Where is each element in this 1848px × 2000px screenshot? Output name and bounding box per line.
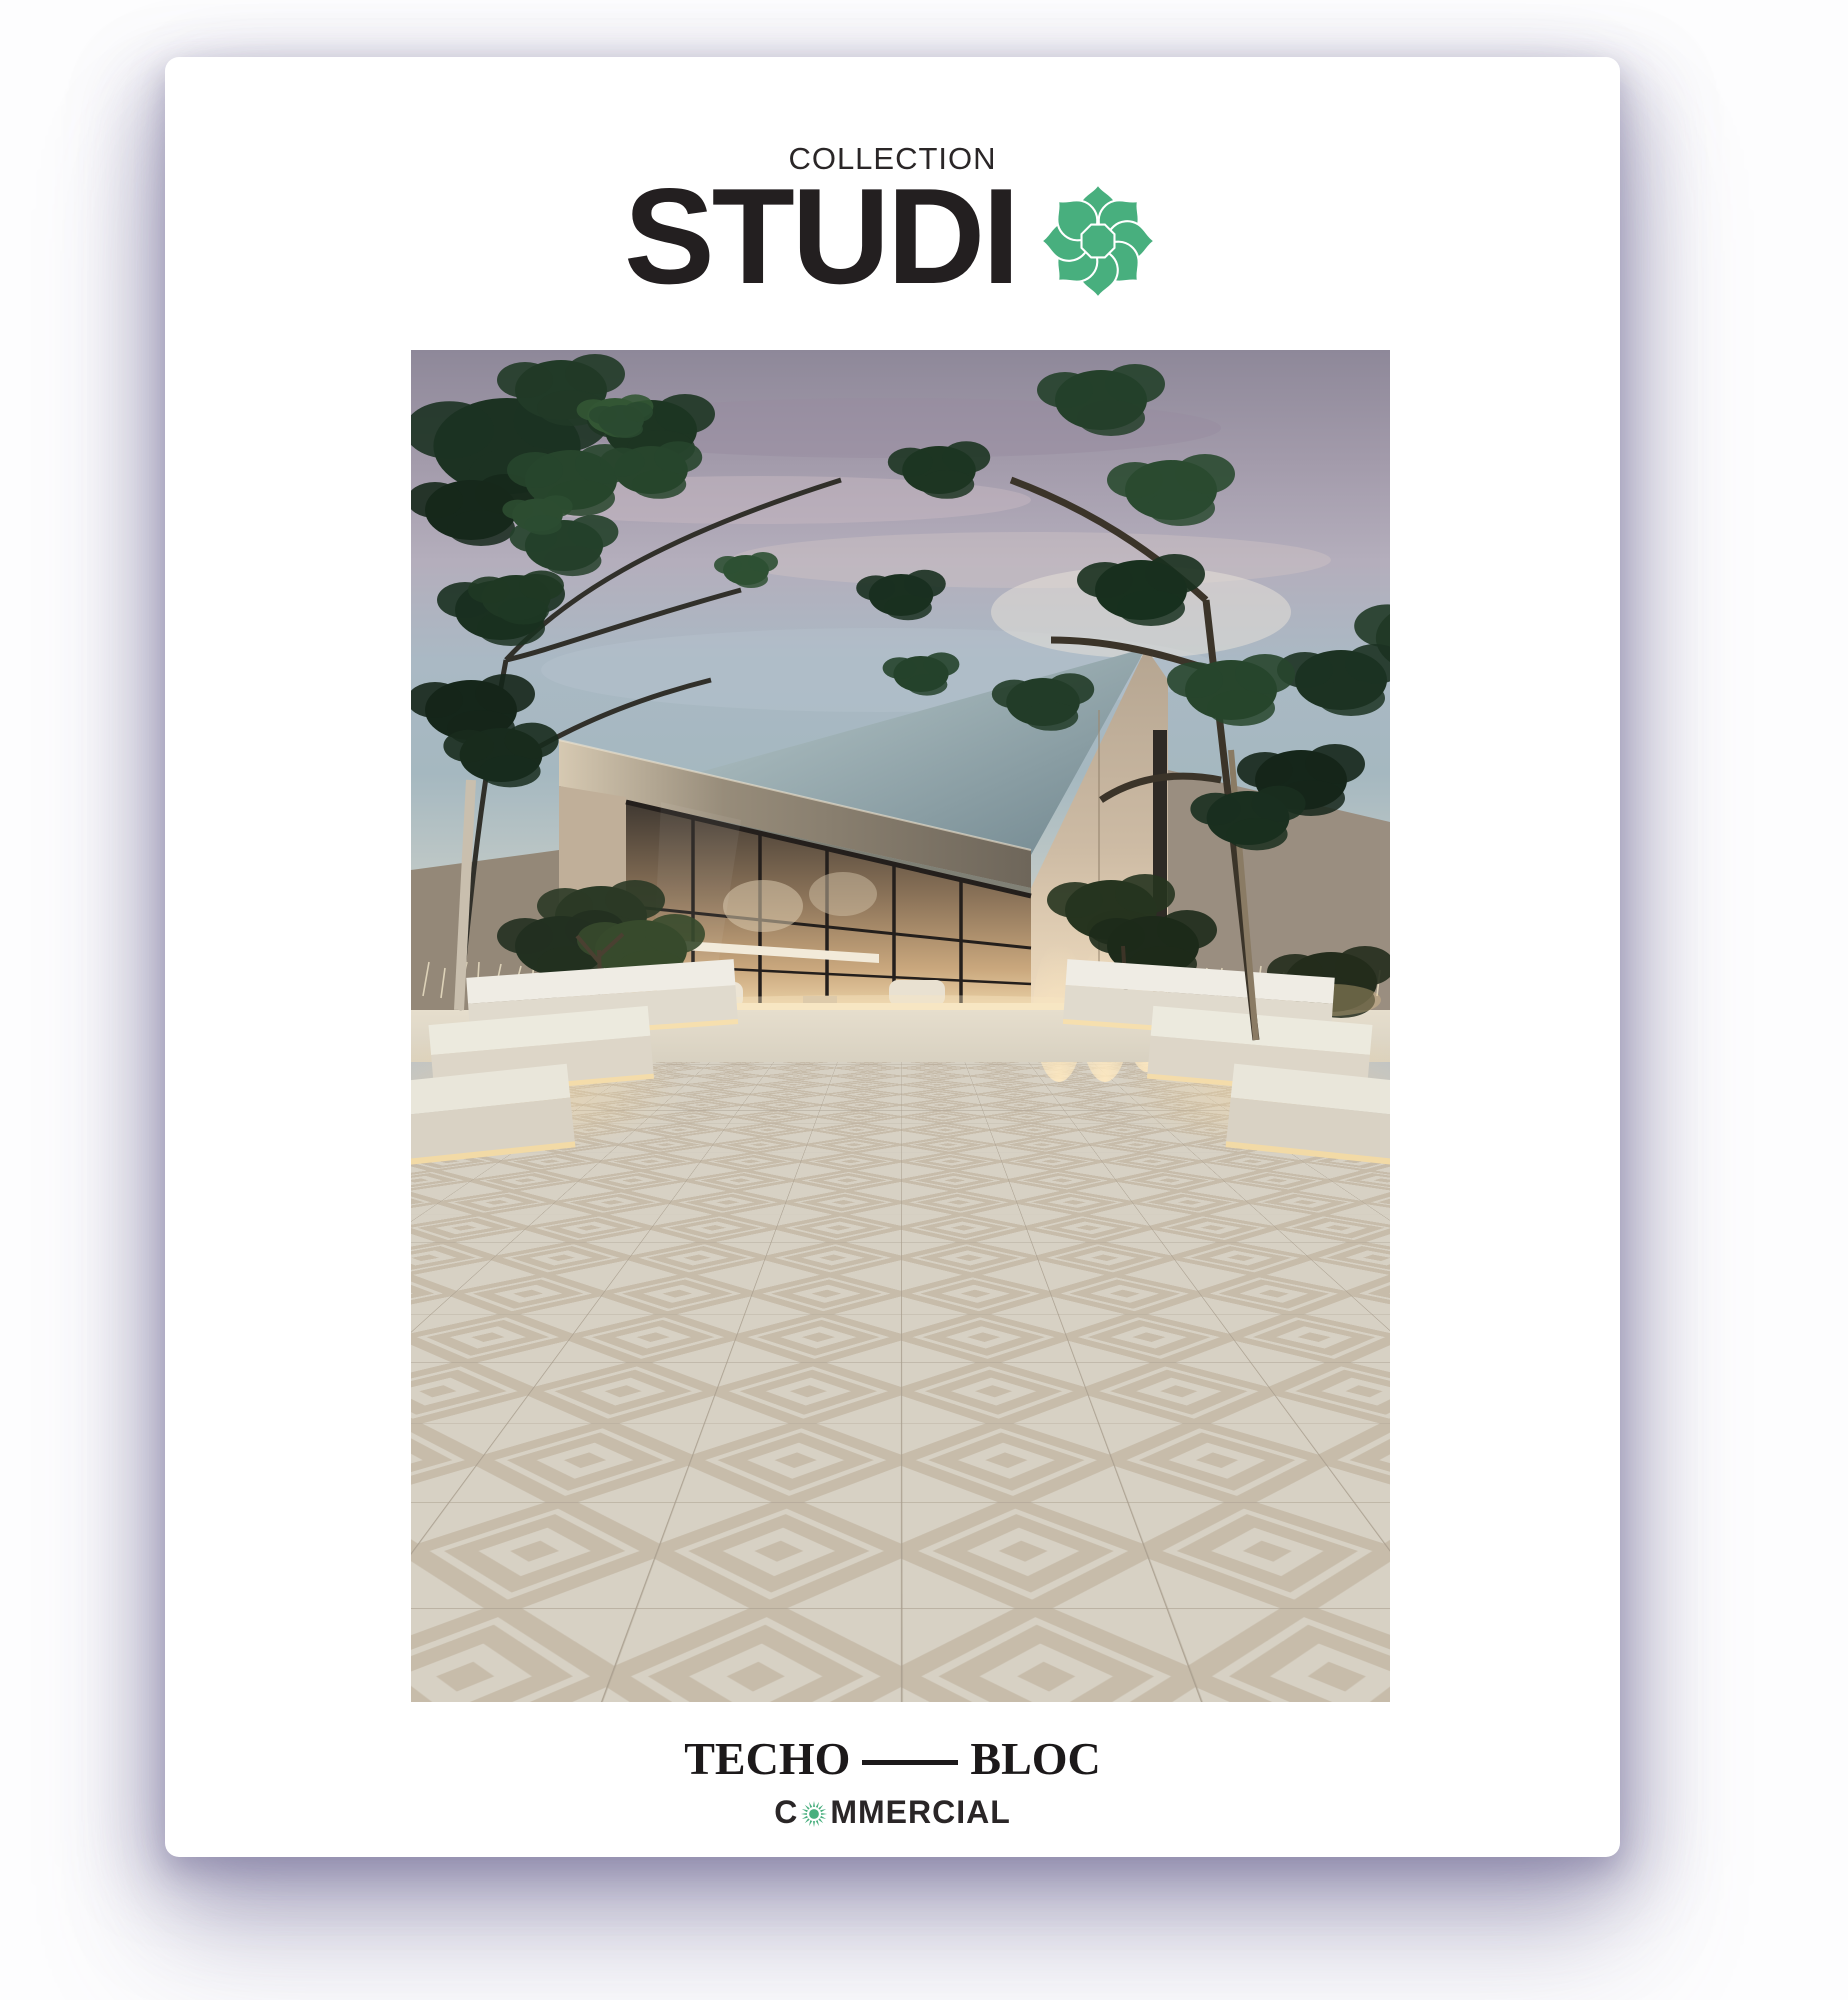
brand-techo: TECHO	[684, 1733, 850, 1786]
commercial-suffix: MMERCIAL	[830, 1794, 1010, 1831]
sky	[411, 350, 1390, 1056]
tree-left	[411, 354, 841, 1010]
small-tree-left	[497, 880, 705, 1010]
plaza-floor	[411, 1010, 1390, 1702]
studio-wordmark: STUDI	[624, 168, 1017, 304]
small-tree-right	[1047, 874, 1390, 1018]
commercial-prefix: C	[774, 1794, 798, 1831]
sunburst-icon	[799, 1799, 829, 1829]
brand-dash	[862, 1760, 958, 1765]
brand-bloc: BLOC	[970, 1733, 1100, 1786]
studio-logo: STUDI	[165, 168, 1620, 304]
planter-grasses	[423, 962, 1380, 998]
magazine-cover: COLLECTION STUDI	[165, 57, 1620, 1857]
canvas: COLLECTION STUDI	[0, 0, 1848, 2000]
tree-right	[714, 364, 1390, 1040]
rosette-flower-icon	[1035, 178, 1161, 304]
commercial-logo: C	[165, 1794, 1620, 1831]
techo-bloc-logo: TECHO BLOC	[165, 1733, 1620, 1786]
cover-photo	[411, 350, 1390, 1702]
brand-footer: TECHO BLOC C	[165, 1733, 1620, 1831]
